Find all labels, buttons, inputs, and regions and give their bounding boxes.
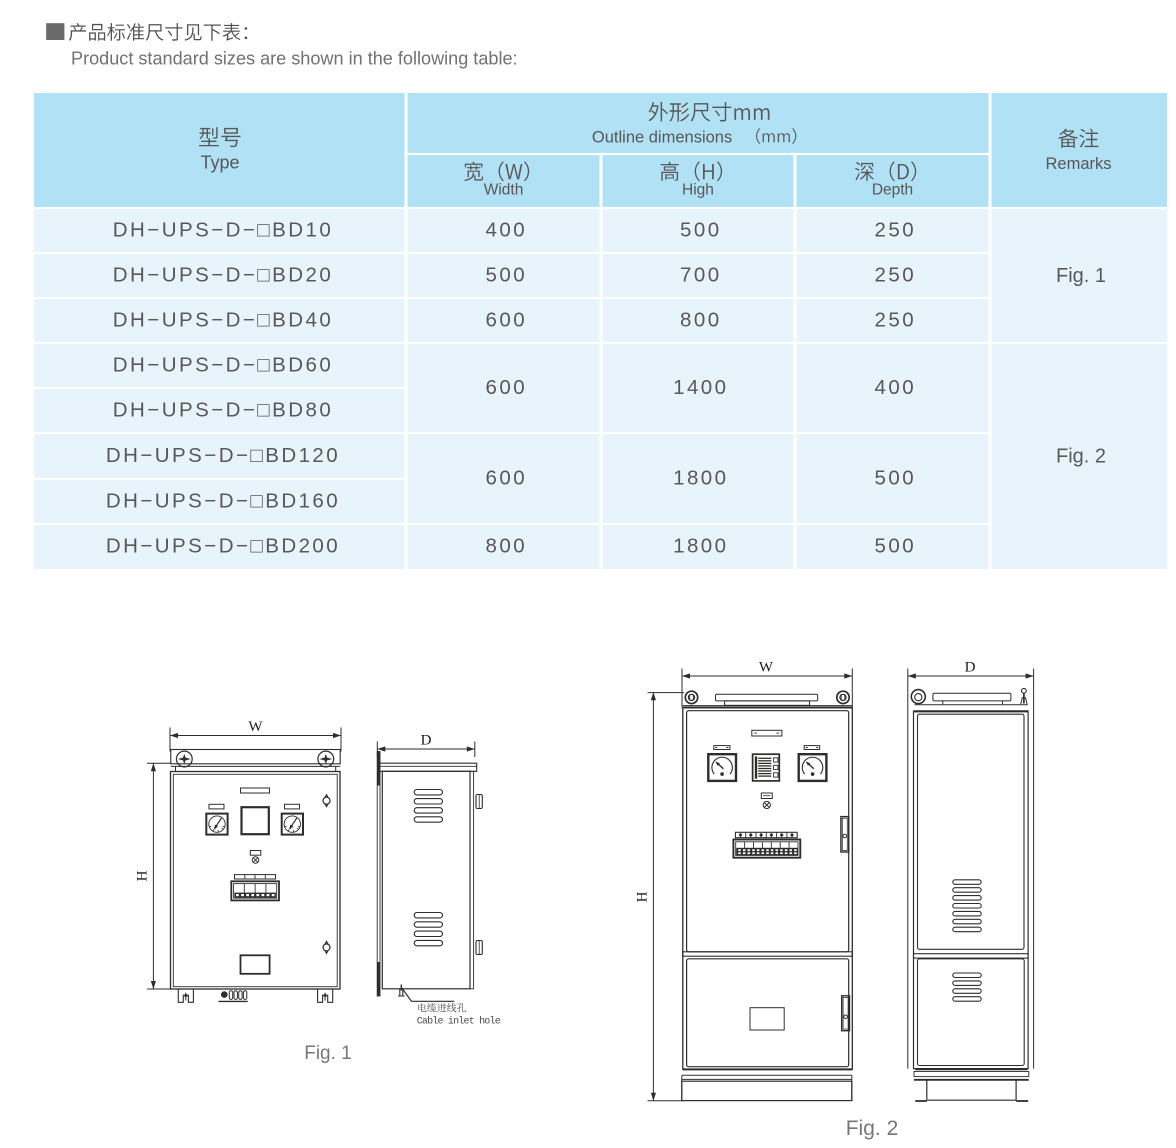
svg-text:D: D bbox=[421, 733, 432, 749]
svg-text:600: 600 bbox=[486, 376, 528, 399]
svg-text:250: 250 bbox=[875, 219, 917, 242]
svg-text:400: 400 bbox=[875, 376, 917, 399]
svg-text:Product standard sizes are sho: Product standard sizes are shown in the … bbox=[71, 49, 518, 69]
svg-text:800: 800 bbox=[486, 535, 528, 558]
svg-text:Width: Width bbox=[484, 182, 524, 199]
svg-text:Fig. 2: Fig. 2 bbox=[1056, 445, 1106, 467]
svg-text:600: 600 bbox=[486, 309, 528, 332]
svg-text:DH−UPS−D−□BD120: DH−UPS−D−□BD120 bbox=[106, 444, 340, 467]
svg-text:DH−UPS−D−□BD40: DH−UPS−D−□BD40 bbox=[113, 309, 333, 332]
svg-text:250: 250 bbox=[875, 309, 917, 332]
svg-text:Fig. 2: Fig. 2 bbox=[846, 1117, 899, 1140]
svg-text:500: 500 bbox=[875, 467, 917, 490]
svg-text:W: W bbox=[248, 719, 263, 735]
svg-text:High: High bbox=[682, 182, 714, 199]
svg-text:H: H bbox=[635, 891, 651, 902]
svg-text:Outline dimensions: Outline dimensions bbox=[592, 128, 732, 146]
svg-text:600: 600 bbox=[486, 467, 528, 490]
svg-text:500: 500 bbox=[486, 264, 528, 287]
svg-text:Fig. 1: Fig. 1 bbox=[304, 1043, 352, 1064]
svg-text:DH−UPS−D−□BD80: DH−UPS−D−□BD80 bbox=[113, 399, 333, 422]
svg-text:1800: 1800 bbox=[673, 535, 728, 558]
svg-text:Depth: Depth bbox=[872, 182, 913, 199]
svg-text:D: D bbox=[965, 660, 976, 676]
svg-text:1800: 1800 bbox=[673, 467, 728, 490]
svg-text:400: 400 bbox=[486, 219, 528, 242]
svg-text:800: 800 bbox=[680, 309, 722, 332]
svg-text:Remarks: Remarks bbox=[1045, 155, 1111, 173]
svg-text:DH−UPS−D−□BD20: DH−UPS−D−□BD20 bbox=[113, 264, 333, 287]
svg-text:W: W bbox=[759, 660, 774, 676]
svg-text:1400: 1400 bbox=[673, 376, 728, 399]
svg-text:DH−UPS−D−□BD160: DH−UPS−D−□BD160 bbox=[106, 490, 340, 513]
svg-text:250: 250 bbox=[875, 264, 917, 287]
svg-text:Type: Type bbox=[200, 153, 239, 173]
svg-text:500: 500 bbox=[680, 219, 722, 242]
svg-text:DH−UPS−D−□BD60: DH−UPS−D−□BD60 bbox=[113, 354, 333, 377]
svg-text:500: 500 bbox=[875, 535, 917, 558]
svg-text:H: H bbox=[135, 870, 151, 881]
svg-text:DH−UPS−D−□BD200: DH−UPS−D−□BD200 bbox=[106, 535, 340, 558]
svg-text:Cable inlet hole: Cable inlet hole bbox=[417, 1016, 501, 1028]
svg-text:DH−UPS−D−□BD10: DH−UPS−D−□BD10 bbox=[113, 219, 333, 242]
svg-text:700: 700 bbox=[680, 264, 722, 287]
svg-text:Fig. 1: Fig. 1 bbox=[1056, 265, 1106, 287]
